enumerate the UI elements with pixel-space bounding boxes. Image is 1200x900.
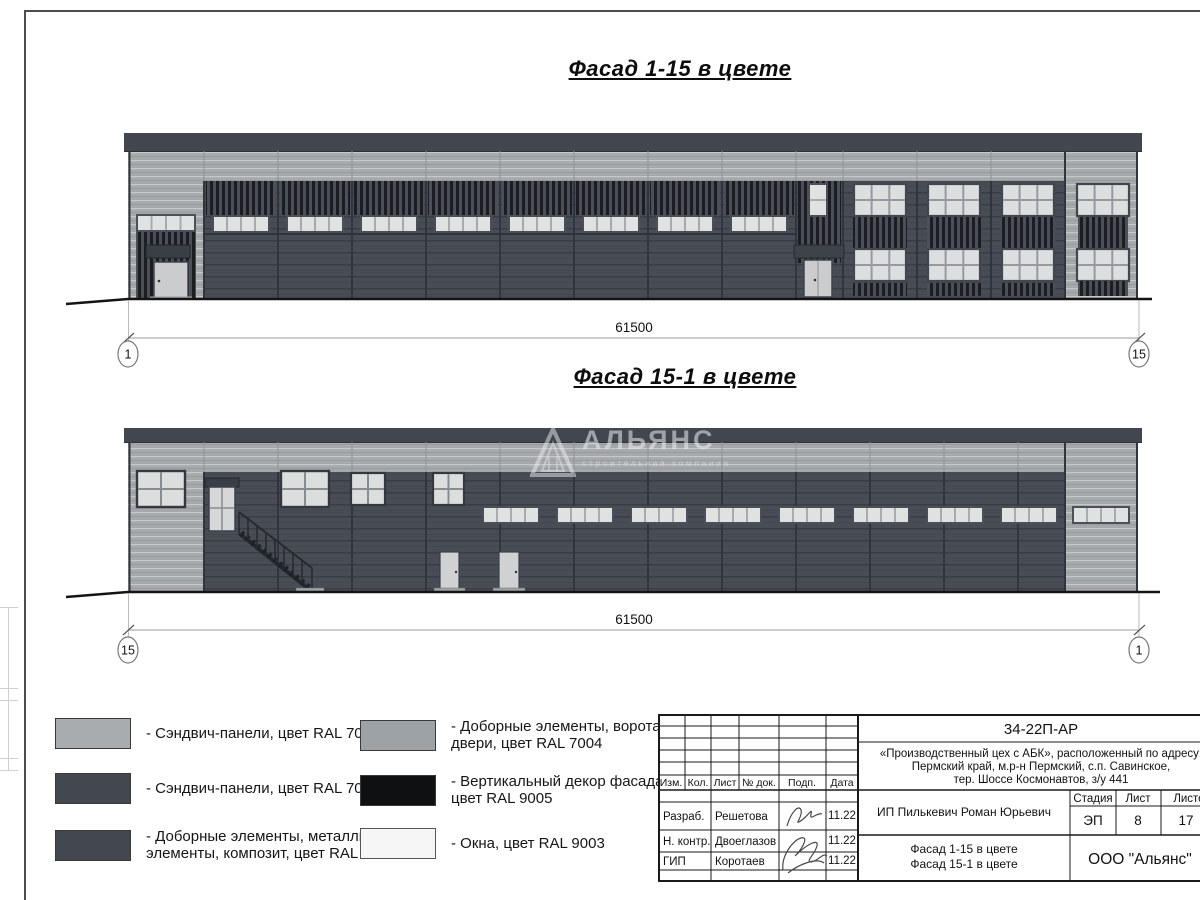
legend-item: - Окна, цвет RAL 9003 (360, 828, 605, 859)
legend-item: - Сэндвич-панели, цвет RAL 7024 (55, 773, 379, 804)
legend-label: - Сэндвич-панели, цвет RAL 7024 (146, 780, 379, 797)
signer-role: Разраб. (663, 811, 704, 823)
legend-swatch (360, 775, 436, 806)
legend-label: - Доборные элементы, ворота, двери, цвет… (451, 718, 665, 753)
facade-1-drawing: 61500 1 15 (60, 125, 1170, 375)
facade-1-building (66, 133, 1152, 304)
legend-label: - Сэндвич-панели, цвет RAL 7004 (146, 725, 379, 742)
stage-label: Стадия (1073, 793, 1112, 805)
facade-2-building (66, 428, 1160, 597)
client-name: ИП Пилькевич Роман Юрьевич (877, 805, 1051, 819)
stage-value: ЭП (1083, 813, 1102, 828)
stamp-col-kol: Кол. (688, 777, 709, 789)
sheet-number: 8 (1134, 813, 1142, 828)
stamp-col-podp: Подп. (788, 777, 816, 789)
frame-left-border (24, 10, 26, 900)
facade-2-title: Фасад 15-1 в цвете (345, 364, 1025, 390)
legend-label: - Окна, цвет RAL 9003 (451, 835, 605, 852)
sheet-title-line2: Фасад 15-1 в цвете (910, 857, 1018, 871)
signer-date: 11.22 (828, 855, 856, 867)
facade-1-dimension: 61500 1 15 (118, 300, 1149, 367)
legend-item: - Сэндвич-панели, цвет RAL 7004 (55, 718, 379, 749)
legend-item: - Доборные элементы, ворота, двери, цвет… (360, 718, 665, 753)
signer-date: 11.22 (828, 810, 856, 822)
sheets-label: Листов (1173, 793, 1200, 805)
stamp-col-izm: Изм. (660, 777, 683, 789)
ground-line (66, 299, 1152, 304)
sheets-total: 17 (1178, 813, 1193, 828)
ground-line (66, 592, 1160, 597)
company-name: ООО "Альянс" (1088, 851, 1192, 868)
axis-bubble-right: 1 (1136, 644, 1143, 658)
legend-swatch (55, 830, 131, 861)
axis-bubble-left: 1 (125, 348, 132, 362)
legend-label: - Доборные элементы, металлич. элементы,… (146, 828, 395, 863)
signer-role: ГИП (663, 856, 686, 868)
legend-swatch (360, 720, 436, 751)
drawing-sheet: { "sheet": { "facade1": {"title":"Фасад … (0, 0, 1200, 900)
project-name-line3: тер. Шоссе Космонавтов, з/у 441 (954, 774, 1129, 786)
stamp-col-doc: № док. (742, 777, 776, 789)
project-name-line2: Пермский край, м.р-н Пермский, с.п. Сави… (912, 761, 1170, 773)
signer-name: Решетова (715, 811, 768, 823)
title-block: 34-22П-АР «Производственный цех с АБК», … (658, 714, 1200, 882)
signer-name: Двоеглазов (715, 836, 776, 848)
signer-date: 11.22 (828, 835, 856, 847)
dimension-label: 61500 (615, 612, 653, 627)
legend-item: - Доборные элементы, металлич. элементы,… (55, 828, 395, 863)
stamp-col-data: Дата (830, 777, 853, 789)
doc-number: 34-22П-АР (1004, 721, 1078, 738)
frame-top-border (24, 10, 1200, 12)
legend-swatch (360, 828, 436, 859)
legend-swatch (55, 773, 131, 804)
signer-name: Коротаев (715, 856, 765, 868)
legend-swatch (55, 718, 131, 749)
facade-1-title: Фасад 1-15 в цвете (340, 56, 1020, 82)
stamp-col-list: Лист (714, 777, 737, 789)
dimension-label: 61500 (615, 320, 653, 335)
legend-item: - Вертикальный декор фасада, цвет RAL 90… (360, 773, 668, 808)
facade-2-drawing: 61500 15 1 (60, 420, 1170, 670)
axis-bubble-left: 15 (121, 644, 135, 658)
signer-role: Н. контр. (663, 836, 710, 848)
sheet-label: Лист (1126, 793, 1152, 805)
entrance-left (136, 215, 196, 300)
axis-bubble-right: 15 (1132, 348, 1146, 362)
legend-label: - Вертикальный декор фасада, цвет RAL 90… (451, 773, 668, 808)
sheet-title-line1: Фасад 1-15 в цвете (910, 842, 1018, 856)
project-name-line1: «Производственный цех с АБК», расположен… (880, 748, 1200, 760)
facade-2-dimension: 61500 15 1 (118, 593, 1149, 663)
